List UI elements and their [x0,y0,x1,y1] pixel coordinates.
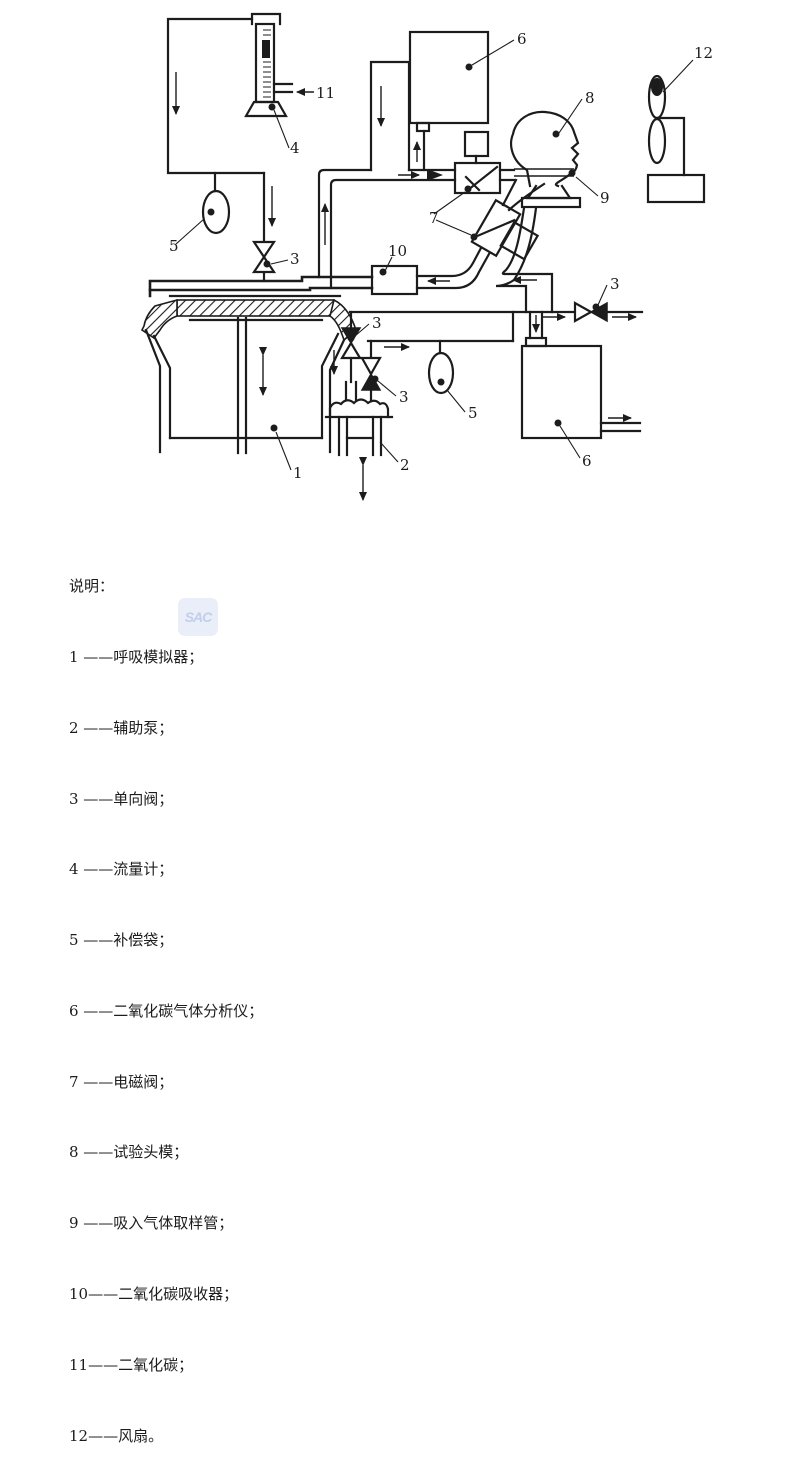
breathing-simulator [142,296,356,453]
callout-numbers: 1 2 3 3 3 3 4 5 5 6 6 7 8 9 10 11 12 [169,30,713,482]
compensation-bag-left [203,173,229,233]
callout-10: 10 [388,242,407,260]
legend-item: 1 ——呼吸模拟器； [69,646,263,670]
callout-6: 6 [517,30,527,48]
schematic-diagram: 1 2 3 3 3 3 4 5 5 6 6 7 8 9 10 11 12 [0,0,806,530]
callout-2: 2 [400,456,410,474]
fan [648,76,704,202]
callout-5: 5 [169,237,179,255]
co2-analyzer-right [522,346,640,438]
check-valve-exhaust [575,303,607,321]
callout-11: 11 [316,84,335,102]
legend-item: 9 ——吸入气体取样管； [69,1212,263,1236]
callout-9: 9 [600,189,610,207]
callout-1: 1 [293,464,303,482]
return-duct [371,62,409,170]
flowmeter-float [262,40,270,58]
solenoid-valve-upper [455,132,500,193]
compensation-bag-right [429,341,453,393]
diaphragm [177,300,334,316]
co2-flowmeter [246,14,292,116]
legend-item: 10——二氧化碳吸收器； [69,1283,263,1307]
callout-3: 3 [372,314,382,332]
legend: 说明： 1 ——呼吸模拟器； 2 ——辅助泵； 3 ——单向阀； 4 ——流量计… [69,528,263,1472]
callout-4: 4 [290,139,300,157]
check-valve-pump-out [362,341,380,390]
legend-header: 说明： [69,575,263,599]
legend-item: 4 ——流量计； [69,858,263,882]
co2-absorber-box [372,266,417,294]
callout-3: 3 [610,275,620,293]
legend-item: 8 ——试验头模； [69,1141,263,1165]
legend-item: 7 ——电磁阀； [69,1071,263,1095]
callout-5: 5 [468,404,478,422]
callout-7: 7 [429,209,439,227]
co2-analyzer-top [410,32,488,131]
legend-item: 6 ——二氧化碳气体分析仪； [69,1000,263,1024]
callout-8: 8 [585,89,595,107]
auxiliary-pump [326,358,392,500]
test-head [511,112,580,207]
check-valve-co2 [254,242,274,272]
callout-3: 3 [399,388,409,406]
legend-item: 2 ——辅助泵； [69,717,263,741]
legend-item: 12——风扇。 [69,1425,263,1449]
legend-item: 3 ——单向阀； [69,788,263,812]
callout-6: 6 [582,452,592,470]
callout-12: 12 [694,44,713,62]
callout-3: 3 [290,250,300,268]
legend-item: 5 ——补偿袋； [69,929,263,953]
legend-item: 11——二氧化碳； [69,1354,263,1378]
